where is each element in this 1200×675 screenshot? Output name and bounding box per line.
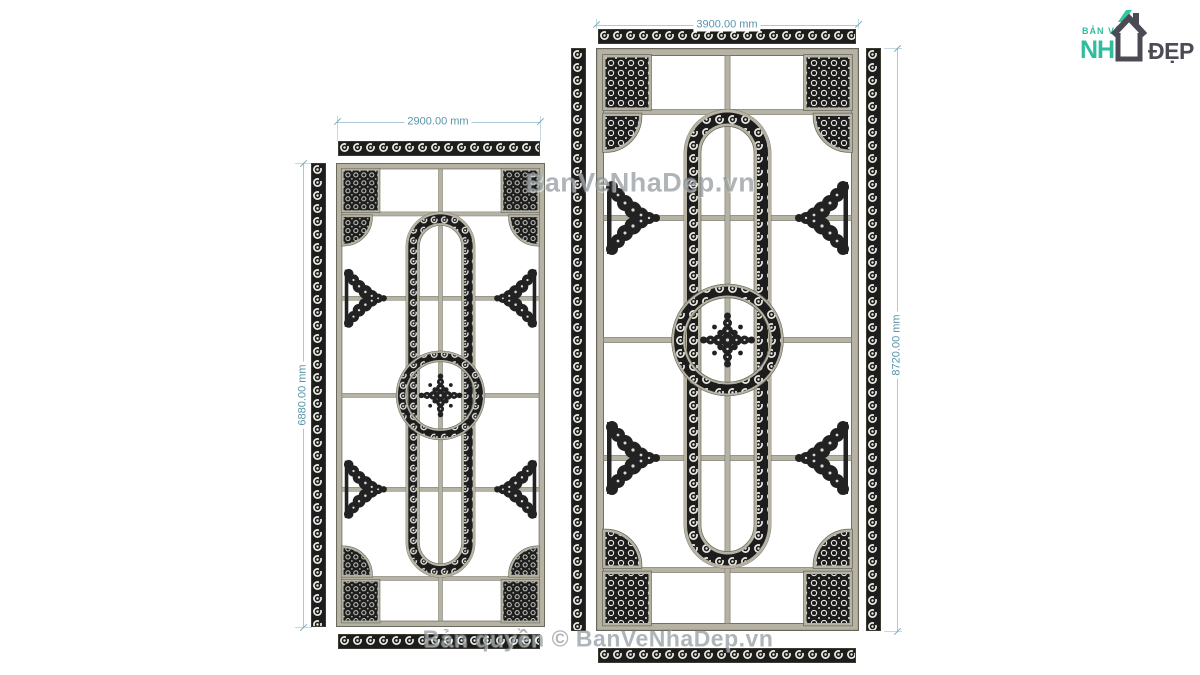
border-strip-right bbox=[866, 48, 881, 631]
extension-line bbox=[884, 631, 902, 632]
small-panel-height-label: 6880.00 mm bbox=[297, 361, 310, 428]
large-panel-width-label: 3900.00 mm bbox=[693, 19, 760, 32]
small-panel-width-label: 2900.00 mm bbox=[404, 116, 471, 129]
house-icon bbox=[1110, 7, 1148, 65]
large-panel-height-label: 8720.00 mm bbox=[891, 311, 904, 378]
extension-line bbox=[884, 48, 902, 49]
border-strip-left bbox=[311, 163, 326, 627]
small-gate-drawing bbox=[336, 163, 545, 627]
border-strip-bottom bbox=[598, 648, 856, 663]
drawing-canvas: 2900.00 mm 6880.00 mm 3900.00 mm bbox=[0, 0, 1200, 675]
logo-brand-right: ĐẸP bbox=[1148, 38, 1194, 65]
logo-brand-left: NH bbox=[1080, 36, 1114, 65]
border-strip-bottom bbox=[338, 634, 540, 649]
border-strip-left bbox=[571, 48, 586, 631]
border-strip-top bbox=[338, 141, 540, 156]
large-gate-drawing bbox=[596, 48, 859, 631]
site-logo: BẢN VẼ NH ĐẸP bbox=[1076, 5, 1200, 73]
